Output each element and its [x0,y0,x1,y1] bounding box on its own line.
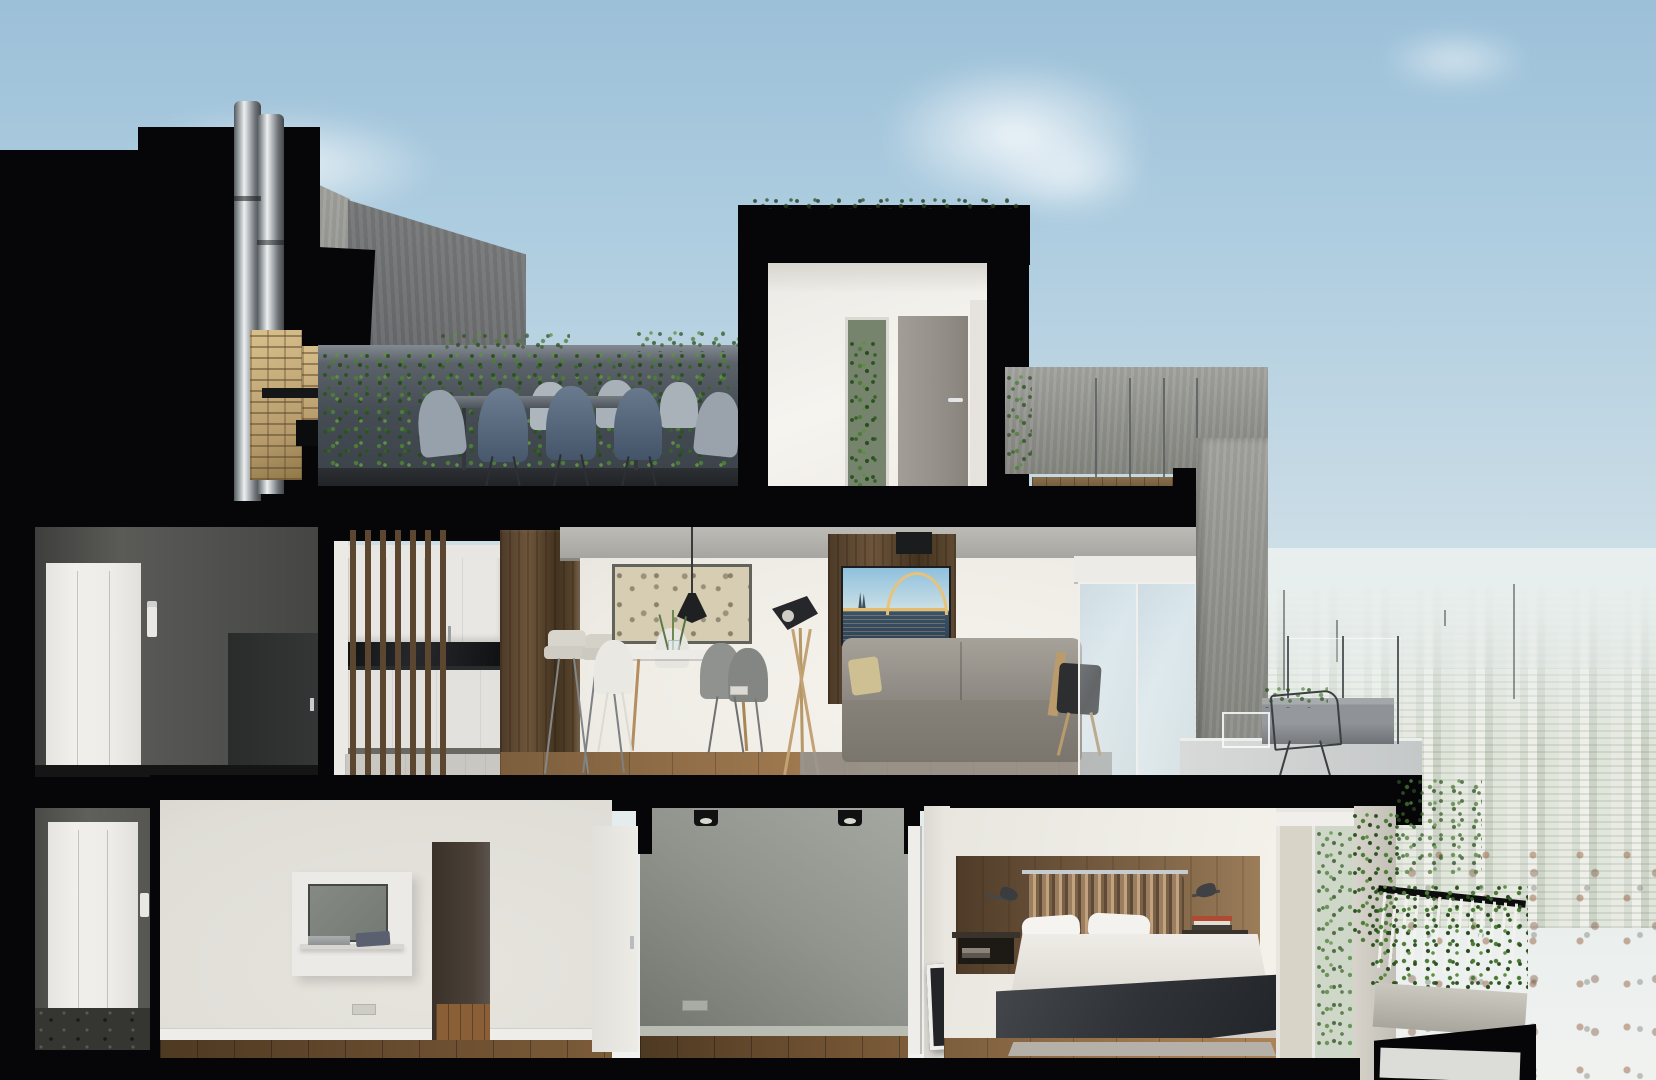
glass-balustrade-post [1095,378,1097,478]
flue-joint-ring [257,240,284,245]
door-handle [310,698,314,711]
terrace-side-table [1222,712,1270,748]
barbecue-brick-column [250,330,302,480]
roller-blind-box [1074,556,1200,582]
bulkhead-ceiling-shade [768,263,988,293]
window-blind-box [1276,812,1354,826]
bulkhead-glass-panel [970,300,987,490]
wall-socket [352,1004,376,1015]
ivy-crest [440,332,570,352]
dvd-player [308,936,350,945]
tv-water-reflections [843,614,945,640]
railing-planter-vines [1370,884,1528,990]
hallway-wood-floor [436,1004,490,1040]
elevator-call-panel [140,893,149,917]
terrace-chair [614,388,662,460]
ivy-through-window [849,340,881,488]
spotlight-bulb [844,818,856,824]
bulkhead-left-wall-cut [738,205,768,490]
cloud [1380,30,1530,90]
door-handle [948,398,963,402]
wall-socket [682,1000,708,1011]
elevator-call-panel [147,601,157,637]
wire-terrace-chair [1270,689,1343,751]
terrace-chair [478,388,528,462]
flue-joint-ring [234,196,261,201]
elevator-door-lower [48,822,138,1010]
game-console [356,931,391,947]
pendant-cord [691,527,693,597]
roof-slab-cut [318,486,1210,528]
bulkhead-door [898,316,968,492]
spotlight-bulb [700,818,712,824]
lobby-stone-floor [35,1008,150,1050]
antenna-mast [1444,610,1446,626]
glass-balustrade-post [1129,378,1131,478]
door-handle [630,936,634,949]
glass-balustrade-post [1397,636,1399,744]
books [962,953,990,958]
door-jamb [334,540,348,775]
apartment-entry-door-open [228,633,318,775]
hanging-vines [1396,778,1482,874]
architectural-section-render: 4 [0,0,1656,1080]
green-roof-fringe [752,197,1024,209]
sofa-seam [960,642,962,700]
baseboard [160,1028,612,1040]
ceiling-speaker [896,532,932,554]
sofa-pillow [848,656,883,696]
multipurpose-room-wall [640,808,908,1060]
sliding-glass-door [1078,582,1138,779]
sofa-body [842,700,1082,762]
balcony-floor [1380,1048,1521,1080]
concrete-corner-column [1196,438,1268,745]
bottom-slab-cut [0,1058,1360,1080]
vines-outside-window [1316,830,1352,1050]
books [1192,925,1232,930]
baseboard [640,1026,908,1036]
window-mullion [1312,812,1315,1076]
antenna-mast [1513,584,1515,699]
elevator-door-upper [46,563,141,775]
wall-socket [730,686,748,695]
dining-chair [594,640,634,694]
tv-bridge-deck [843,608,945,611]
vine-sprig [1006,374,1032,470]
bed-base [1008,1042,1276,1056]
lamp-bulb-face [782,610,794,622]
terrace-chair-far [660,382,698,428]
terrace-chair [546,386,596,460]
ivy-crest [636,330,744,352]
room-door-edge [908,826,922,1054]
door-frame-cut [636,808,652,854]
wood-slat-screen [350,530,450,775]
glass-balustrade-post [1163,378,1165,478]
